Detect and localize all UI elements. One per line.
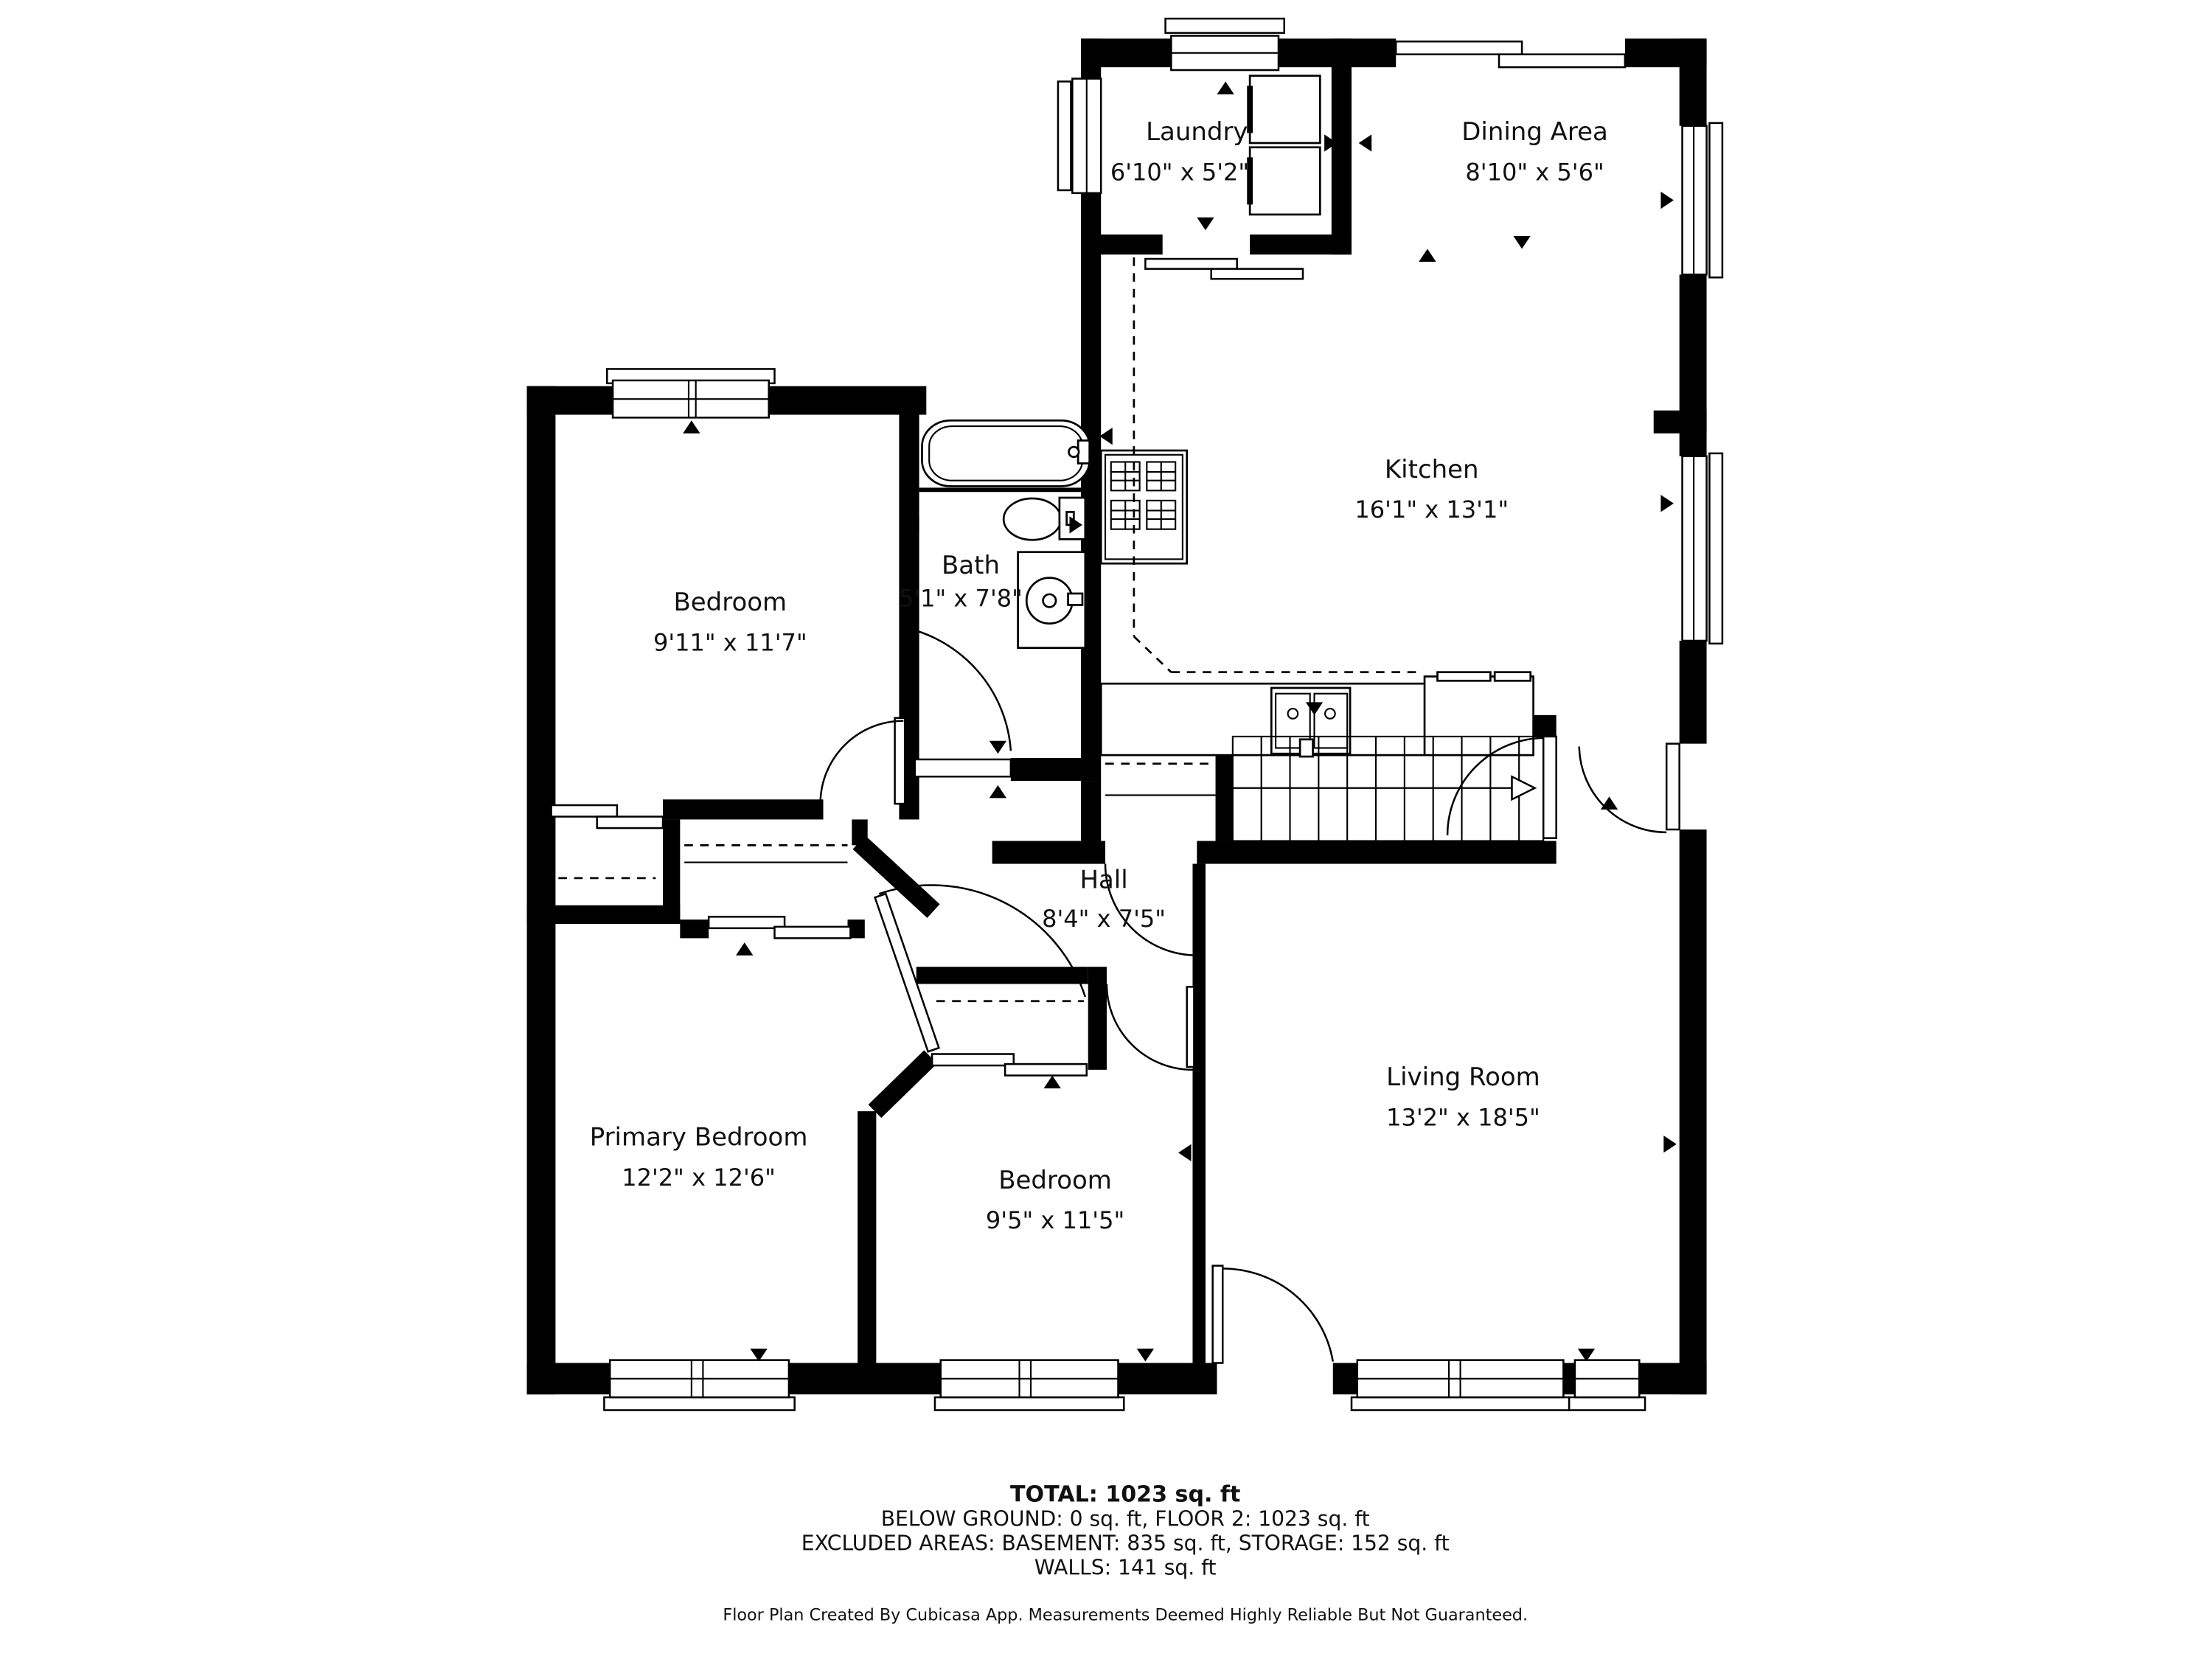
room-label-primary: Primary Bedroom (590, 1123, 808, 1152)
floor-plan-page: Laundry 6'10" x 5'2" Dining Area 8'10" x… (0, 0, 2212, 1659)
window (1683, 123, 1722, 277)
stairs-direction-arrow (1512, 776, 1534, 799)
summary-block: TOTAL: 1023 sq. ft BELOW GROUND: 0 sq. f… (723, 1482, 1528, 1625)
kitchen-counter (1101, 684, 1426, 755)
room-dims-kitchen: 16'1" x 13'1" (1354, 495, 1509, 524)
room-label-bedroom-bottom: Bedroom (998, 1166, 1112, 1195)
room-label-living: Living Room (1386, 1062, 1540, 1092)
room-dims-dining: 8'10" x 5'6" (1465, 158, 1604, 186)
room-dims-bath: 5'1" x 7'8" (899, 584, 1023, 612)
window (1058, 79, 1101, 193)
door-bedroom-top (821, 718, 905, 804)
summary-walls: WALLS: 141 sq. ft (1034, 1556, 1217, 1580)
closet-slider (552, 805, 663, 828)
room-label-bath: Bath (942, 551, 1000, 580)
window (1569, 1360, 1645, 1411)
door-bedroom-bottom (1107, 984, 1194, 1069)
summary-excluded-areas: EXCLUDED AREAS: BASEMENT: 835 sq. ft, ST… (801, 1531, 1450, 1556)
dryer-icon (1247, 147, 1320, 215)
room-dims-bedroom-bottom: 9'5" x 11'5" (986, 1206, 1124, 1234)
room-dims-hall: 8'4" x 7'5" (1042, 905, 1166, 933)
room-label-dining: Dining Area (1461, 117, 1608, 147)
window (604, 1360, 794, 1411)
window (1166, 18, 1284, 70)
room-label-laundry: Laundry (1146, 117, 1248, 147)
window (1683, 453, 1722, 644)
room-dims-primary: 12'2" x 12'6" (622, 1164, 776, 1192)
room-label-hall: Hall (1079, 866, 1127, 895)
window (1352, 1360, 1569, 1411)
door-back-living (1213, 1266, 1333, 1363)
room-dims-bedroom-top: 9'11" x 11'7" (653, 629, 807, 657)
summary-total: TOTAL: 1023 sq. ft (1010, 1482, 1240, 1508)
room-label-bedroom-top: Bedroom (673, 588, 787, 617)
floor-plan-canvas: Laundry 6'10" x 5'2" Dining Area 8'10" x… (0, 0, 2212, 1659)
window (935, 1360, 1124, 1411)
door-bath (915, 630, 1011, 776)
kitchen-sink-icon (1271, 688, 1350, 757)
laundry-shelf (1145, 259, 1303, 279)
sliding-door (1396, 41, 1625, 67)
room-dims-living: 13'2" x 18'5" (1386, 1104, 1540, 1132)
bath-sink-icon (1018, 552, 1085, 648)
closet-slider (932, 1054, 1087, 1076)
window (607, 369, 774, 417)
bathtub-icon (919, 420, 1090, 492)
stove-icon (1101, 451, 1187, 563)
room-label-kitchen: Kitchen (1385, 455, 1479, 484)
closet-slider (709, 917, 850, 938)
washer-icon (1247, 76, 1320, 143)
room-dims-laundry: 6'10" x 5'2" (1110, 158, 1249, 186)
door-front-entry (1579, 744, 1680, 832)
summary-below-ground: BELOW GROUND: 0 sq. ft, FLOOR 2: 1023 sq… (881, 1507, 1370, 1531)
footer-disclaimer: Floor Plan Created By Cubicasa App. Meas… (723, 1606, 1528, 1625)
